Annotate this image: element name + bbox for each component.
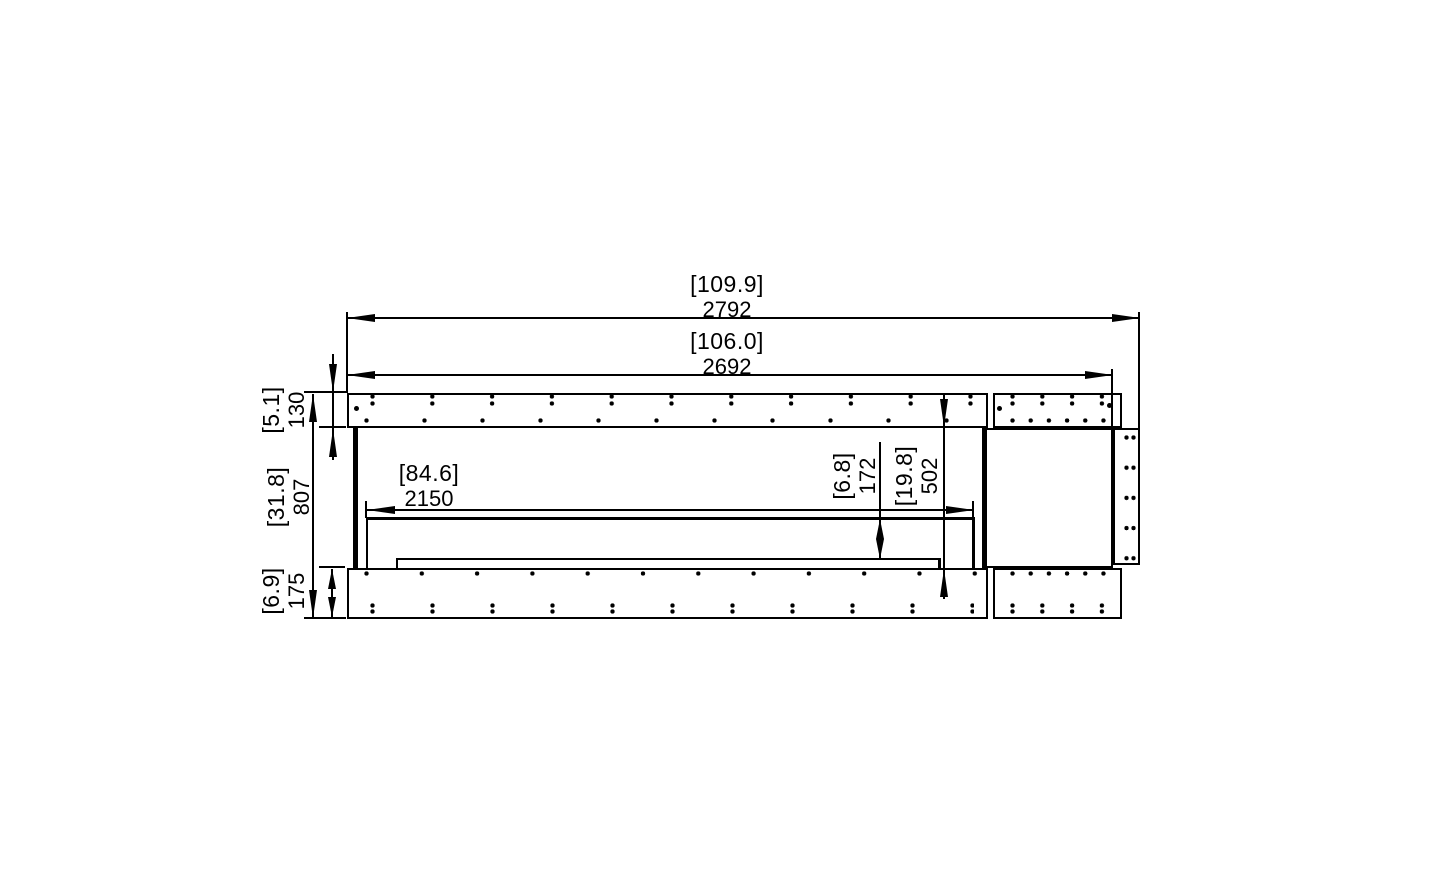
dim-value-inches: [6.9] — [259, 567, 284, 614]
dimension-line — [347, 374, 1113, 376]
arrowhead-right — [1085, 371, 1113, 379]
arrowhead-up — [876, 519, 884, 539]
dim-value-inches: [31.8] — [264, 467, 289, 528]
burner-left-edge — [396, 558, 398, 569]
arrowhead-left — [347, 371, 375, 379]
opening-right-edge — [972, 517, 974, 568]
opening-left-edge — [366, 517, 368, 568]
dim-firebox-depth-label: [19.8] 502 — [892, 446, 942, 507]
arrowhead-down — [309, 590, 317, 618]
dim-opening-width-label: [106.0] 2692 — [690, 329, 764, 379]
dim-burner-depth-label: [6.8] 172 — [830, 452, 880, 499]
dim-burner-width-label: [84.6] 2150 — [399, 461, 460, 511]
dim-value-inches: [6.8] — [830, 452, 855, 499]
dim-value-inches: [84.6] — [399, 461, 460, 486]
dim-value-mm: 807 — [289, 467, 314, 528]
screw-hole-dot — [354, 406, 359, 411]
extension-tick — [365, 501, 367, 518]
extension-tick — [972, 501, 974, 518]
screw-hole-dots — [1131, 435, 1136, 563]
arrowhead-left — [367, 506, 395, 514]
arrowhead-right — [946, 506, 974, 514]
arrowhead-up — [328, 569, 336, 589]
screw-hole-dots — [370, 394, 980, 399]
dim-value-mm: 2150 — [399, 486, 460, 511]
arrowhead-down — [328, 597, 336, 617]
screw-hole-dots — [370, 401, 980, 406]
firebox-divider-wall — [982, 428, 987, 568]
dim-overall-depth-label: [31.8] 807 — [264, 467, 314, 528]
screw-hole-dots — [1010, 571, 1112, 576]
firebox-left-wall — [353, 428, 358, 568]
dim-value-inches: [106.0] — [690, 329, 764, 354]
extension-line — [1111, 369, 1113, 426]
dim-value-mm: 175 — [284, 567, 309, 614]
dimension-line — [367, 509, 974, 511]
dim-overall-width-label: [109.9] 2792 — [690, 272, 764, 322]
dim-value-inches: [5.1] — [259, 386, 284, 433]
dim-front-depth-label: [5.1] 130 — [259, 386, 309, 433]
screw-hole-dots — [1010, 603, 1112, 608]
screw-hole-dots — [1010, 609, 1112, 614]
burner-top-edge — [396, 558, 941, 560]
dim-value-inches: [19.8] — [892, 446, 917, 507]
screw-hole-dots — [370, 603, 974, 608]
dimension-line — [312, 394, 314, 618]
extension-tick — [319, 566, 345, 568]
technical-drawing: [109.9] 2792 [106.0] 2692 [84.6] 2150 — [0, 0, 1445, 893]
arrowhead-left — [347, 314, 375, 322]
arrowhead-down — [876, 539, 884, 559]
screw-hole-dots — [364, 571, 978, 576]
screw-hole-dots — [1010, 418, 1112, 423]
screw-hole-dots — [370, 609, 974, 614]
arrowhead-up — [329, 429, 337, 457]
extension-line — [346, 312, 348, 393]
dim-value-mm: 130 — [284, 386, 309, 433]
screw-hole-dots — [1124, 435, 1129, 563]
arrowhead-down — [940, 399, 948, 427]
screw-hole-dot — [997, 406, 1002, 411]
screw-hole-dots — [1010, 394, 1112, 399]
arrowhead-down — [329, 364, 337, 392]
dimension-line — [347, 317, 1140, 319]
extension-tick — [304, 617, 346, 619]
arrowhead-right — [1112, 314, 1140, 322]
extension-tick — [319, 426, 346, 428]
dim-rear-depth-label: [6.9] 175 — [259, 567, 309, 614]
right-end-compartment — [985, 428, 1113, 568]
screw-hole-dots — [364, 418, 959, 423]
extension-line — [1138, 312, 1140, 428]
arrowhead-up — [940, 569, 948, 597]
dim-value-inches: [109.9] — [690, 272, 764, 297]
arrowhead-up — [309, 394, 317, 422]
dim-value-mm: 172 — [855, 452, 880, 499]
burner-right-edge — [938, 558, 940, 569]
screw-hole-dots — [1010, 401, 1112, 406]
dim-value-mm: 502 — [917, 446, 942, 507]
